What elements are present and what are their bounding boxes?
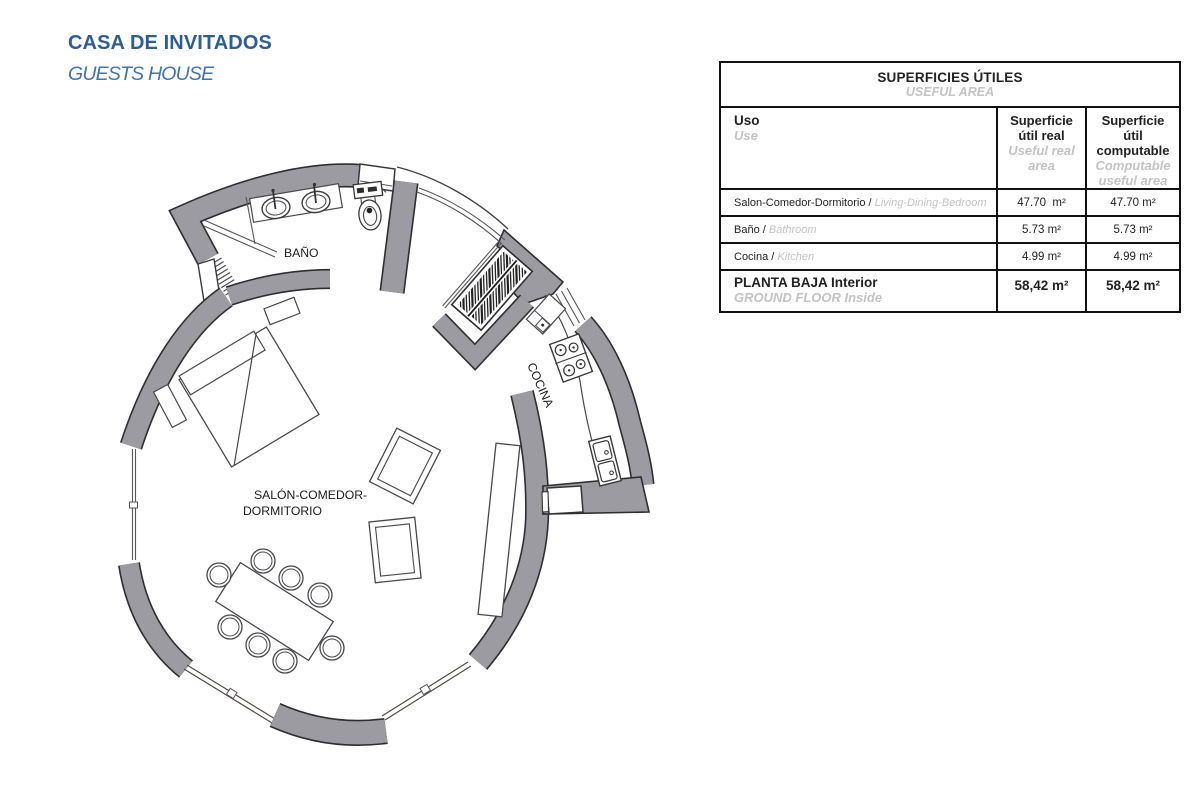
svg-text:SALÓN-COMEDOR-: SALÓN-COMEDOR-	[254, 487, 367, 502]
svg-text:DORMITORIO: DORMITORIO	[243, 504, 322, 518]
svg-text:BAÑO: BAÑO	[284, 246, 319, 260]
